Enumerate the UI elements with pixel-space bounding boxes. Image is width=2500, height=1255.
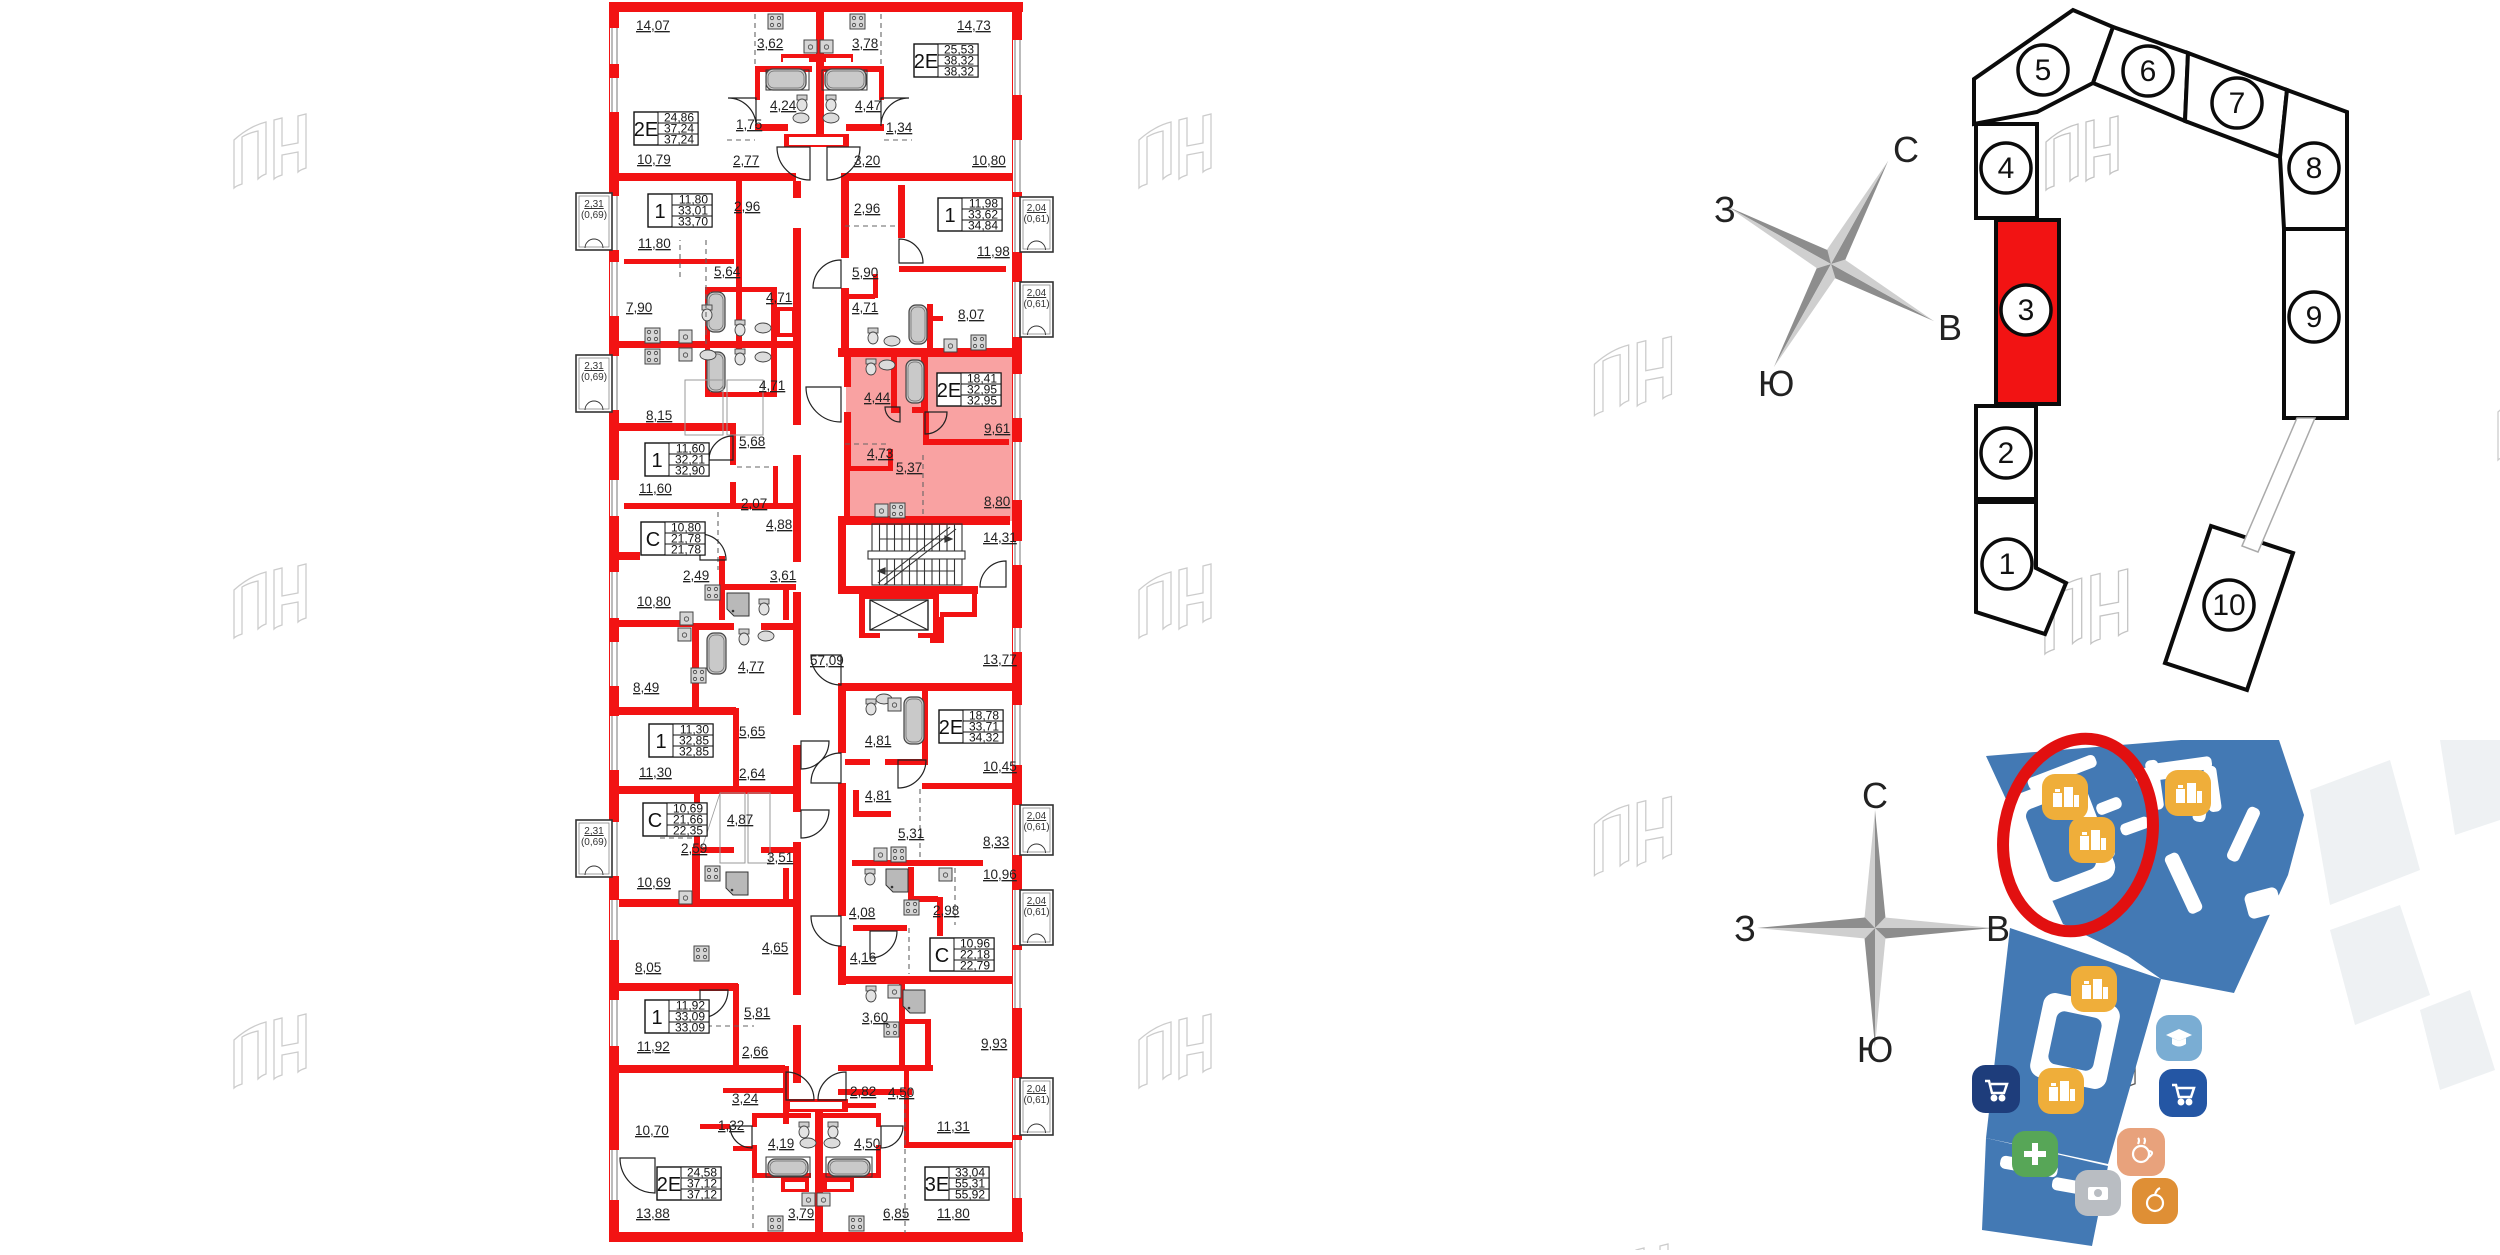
svg-text:11,31: 11,31 xyxy=(937,1119,970,1134)
svg-text:3,24: 3,24 xyxy=(732,1091,759,1106)
svg-text:10,45: 10,45 xyxy=(983,759,1017,774)
svg-text:9,61: 9,61 xyxy=(984,421,1010,436)
svg-text:4,19: 4,19 xyxy=(768,1136,794,1151)
svg-text:6: 6 xyxy=(2140,55,2157,88)
svg-text:(0,69): (0,69) xyxy=(581,210,607,221)
svg-text:22,79: 22,79 xyxy=(960,959,990,973)
svg-text:(0,61): (0,61) xyxy=(1023,822,1049,833)
svg-text:З: З xyxy=(1734,908,1756,949)
svg-text:5,31: 5,31 xyxy=(898,826,924,841)
svg-text:4,16: 4,16 xyxy=(850,950,876,965)
svg-text:4,77: 4,77 xyxy=(738,659,764,674)
svg-text:2,07: 2,07 xyxy=(741,496,767,511)
svg-text:22,35: 22,35 xyxy=(673,824,703,838)
svg-text:(0,61): (0,61) xyxy=(1023,214,1049,225)
svg-text:2,49: 2,49 xyxy=(683,568,709,583)
svg-text:10,96: 10,96 xyxy=(983,867,1017,882)
svg-text:6,85: 6,85 xyxy=(883,1206,909,1221)
svg-text:3,78: 3,78 xyxy=(852,36,878,51)
svg-text:1: 1 xyxy=(651,450,662,472)
svg-text:2,04: 2,04 xyxy=(1027,288,1047,299)
svg-text:2,98: 2,98 xyxy=(933,903,959,918)
svg-text:4,73: 4,73 xyxy=(867,446,893,461)
svg-text:10: 10 xyxy=(2212,589,2245,622)
svg-text:3,20: 3,20 xyxy=(854,153,880,168)
svg-text:11,98: 11,98 xyxy=(977,244,1010,259)
svg-text:4,88: 4,88 xyxy=(766,517,792,532)
svg-text:21,78: 21,78 xyxy=(671,543,701,557)
svg-text:С: С xyxy=(1893,129,1919,170)
svg-text:1: 1 xyxy=(651,1007,662,1029)
svg-text:4,08: 4,08 xyxy=(849,905,875,920)
svg-text:11,30: 11,30 xyxy=(639,765,672,780)
svg-text:38,32: 38,32 xyxy=(944,65,974,79)
svg-text:3,62: 3,62 xyxy=(757,36,783,51)
svg-text:C: C xyxy=(935,945,949,967)
svg-text:2,04: 2,04 xyxy=(1027,811,1047,822)
svg-text:32,95: 32,95 xyxy=(967,394,997,408)
svg-text:57,09: 57,09 xyxy=(810,653,844,668)
svg-text:11,92: 11,92 xyxy=(637,1039,670,1054)
svg-text:2,96: 2,96 xyxy=(734,199,760,214)
svg-text:2,04: 2,04 xyxy=(1027,203,1047,214)
svg-text:8,05: 8,05 xyxy=(635,960,661,975)
svg-text:1: 1 xyxy=(655,731,666,753)
svg-text:4,71: 4,71 xyxy=(759,378,785,393)
svg-text:(0,61): (0,61) xyxy=(1023,1095,1049,1106)
svg-text:13,88: 13,88 xyxy=(636,1206,670,1221)
svg-text:1,34: 1,34 xyxy=(886,120,913,135)
svg-text:3: 3 xyxy=(2018,294,2035,327)
svg-text:2,96: 2,96 xyxy=(854,201,880,216)
svg-text:2E: 2E xyxy=(657,1174,681,1196)
svg-text:1: 1 xyxy=(944,205,955,227)
svg-text:3,51: 3,51 xyxy=(767,850,793,865)
svg-text:3E: 3E xyxy=(925,1174,949,1196)
svg-text:34,32: 34,32 xyxy=(969,731,999,745)
svg-text:4,44: 4,44 xyxy=(864,390,891,405)
svg-text:2E: 2E xyxy=(937,380,961,402)
svg-text:2: 2 xyxy=(1998,437,2015,470)
svg-text:8,07: 8,07 xyxy=(958,307,984,322)
svg-text:1,75: 1,75 xyxy=(736,117,762,132)
svg-text:2,04: 2,04 xyxy=(1027,896,1047,907)
svg-text:14,31: 14,31 xyxy=(983,530,1017,545)
svg-text:2E: 2E xyxy=(634,119,658,141)
svg-text:4,24: 4,24 xyxy=(770,98,797,113)
svg-text:2,31: 2,31 xyxy=(584,199,604,210)
svg-text:4,71: 4,71 xyxy=(766,290,792,305)
svg-text:8,15: 8,15 xyxy=(646,408,672,423)
svg-text:5,37: 5,37 xyxy=(896,460,922,475)
svg-text:4,71: 4,71 xyxy=(852,300,878,315)
svg-text:Ю: Ю xyxy=(1758,363,1794,404)
svg-text:11,60: 11,60 xyxy=(639,481,672,496)
svg-text:34,84: 34,84 xyxy=(968,219,998,233)
svg-text:7: 7 xyxy=(2229,87,2246,120)
svg-text:4,81: 4,81 xyxy=(865,788,891,803)
svg-text:5,68: 5,68 xyxy=(739,434,765,449)
svg-text:11,80: 11,80 xyxy=(638,236,671,251)
svg-text:1: 1 xyxy=(1999,548,2016,581)
svg-text:5,64: 5,64 xyxy=(714,264,741,279)
svg-text:10,80: 10,80 xyxy=(972,153,1006,168)
svg-text:(0,69): (0,69) xyxy=(581,372,607,383)
svg-text:4,47: 4,47 xyxy=(855,98,881,113)
svg-text:4,50: 4,50 xyxy=(854,1136,880,1151)
svg-text:8,49: 8,49 xyxy=(633,680,659,695)
svg-text:2,64: 2,64 xyxy=(739,766,766,781)
svg-text:8,33: 8,33 xyxy=(983,834,1009,849)
svg-text:1: 1 xyxy=(654,201,665,223)
svg-text:2,66: 2,66 xyxy=(742,1044,768,1059)
svg-text:4,81: 4,81 xyxy=(865,733,891,748)
svg-text:(0,61): (0,61) xyxy=(1023,907,1049,918)
svg-text:2E: 2E xyxy=(914,51,938,73)
svg-text:2,04: 2,04 xyxy=(1027,1084,1047,1095)
svg-text:2,82: 2,82 xyxy=(850,1084,876,1099)
svg-text:З: З xyxy=(1714,189,1736,230)
svg-text:32,90: 32,90 xyxy=(675,464,705,478)
svg-text:9: 9 xyxy=(2306,301,2323,334)
svg-text:10,69: 10,69 xyxy=(637,875,671,890)
svg-text:2,31: 2,31 xyxy=(584,826,604,837)
svg-text:C: C xyxy=(648,810,662,832)
svg-text:11,80: 11,80 xyxy=(937,1206,970,1221)
svg-text:10,70: 10,70 xyxy=(635,1123,669,1138)
svg-text:5,81: 5,81 xyxy=(744,1005,770,1020)
svg-text:10,79: 10,79 xyxy=(637,152,671,167)
svg-text:2,77: 2,77 xyxy=(733,153,759,168)
svg-text:5,90: 5,90 xyxy=(852,265,878,280)
svg-text:2E: 2E xyxy=(939,717,963,739)
svg-text:4,50: 4,50 xyxy=(888,1085,914,1100)
svg-text:7,90: 7,90 xyxy=(626,300,652,315)
svg-text:3,60: 3,60 xyxy=(862,1010,888,1025)
svg-text:4,65: 4,65 xyxy=(762,940,788,955)
svg-text:2,31: 2,31 xyxy=(584,361,604,372)
svg-text:3,61: 3,61 xyxy=(770,568,796,583)
svg-text:5,65: 5,65 xyxy=(739,724,765,739)
svg-text:10,80: 10,80 xyxy=(637,594,671,609)
svg-text:13,77: 13,77 xyxy=(983,652,1017,667)
svg-text:14,73: 14,73 xyxy=(957,18,991,33)
svg-text:В: В xyxy=(1938,307,1962,348)
svg-text:8: 8 xyxy=(2306,152,2323,185)
svg-text:С: С xyxy=(1862,775,1888,816)
svg-text:(0,61): (0,61) xyxy=(1023,299,1049,310)
svg-text:14,07: 14,07 xyxy=(636,18,670,33)
svg-text:9,93: 9,93 xyxy=(981,1036,1007,1051)
svg-text:5: 5 xyxy=(2035,54,2052,87)
svg-text:55,92: 55,92 xyxy=(955,1188,985,1202)
svg-text:37,12: 37,12 xyxy=(687,1188,717,1202)
svg-text:33,70: 33,70 xyxy=(678,215,708,229)
svg-text:C: C xyxy=(646,529,660,551)
svg-text:2,59: 2,59 xyxy=(681,841,707,856)
svg-text:Ю: Ю xyxy=(1857,1029,1893,1070)
svg-text:37,24: 37,24 xyxy=(664,133,694,147)
svg-text:32,85: 32,85 xyxy=(679,745,709,759)
svg-text:4: 4 xyxy=(1998,152,2015,185)
svg-text:4,87: 4,87 xyxy=(727,812,753,827)
svg-text:33,09: 33,09 xyxy=(675,1021,705,1035)
svg-text:8,80: 8,80 xyxy=(984,494,1010,509)
svg-text:В: В xyxy=(1986,908,2010,949)
svg-text:1,32: 1,32 xyxy=(718,1118,744,1133)
svg-text:(0,69): (0,69) xyxy=(581,837,607,848)
svg-text:3,79: 3,79 xyxy=(788,1206,814,1221)
